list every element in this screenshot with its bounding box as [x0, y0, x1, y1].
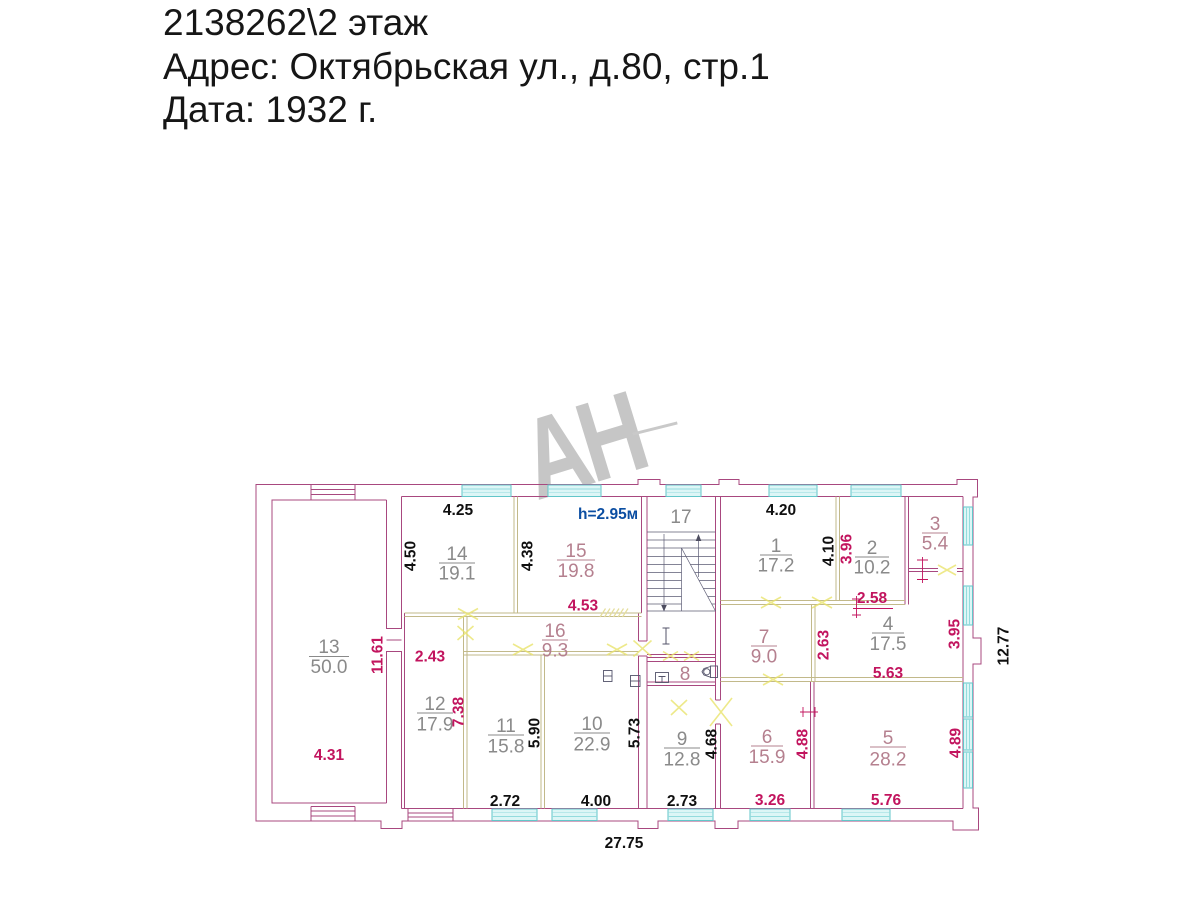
- svg-text:11: 11: [496, 716, 516, 737]
- svg-text:2.43: 2.43: [415, 649, 446, 666]
- svg-text:50.0: 50.0: [311, 657, 348, 678]
- svg-text:9.0: 9.0: [751, 647, 777, 668]
- svg-text:9.3: 9.3: [542, 641, 568, 662]
- svg-text:7: 7: [759, 627, 770, 648]
- svg-text:17.9: 17.9: [417, 715, 454, 736]
- svg-text:15: 15: [565, 541, 586, 562]
- svg-text:11.61: 11.61: [370, 636, 387, 674]
- svg-text:5.73: 5.73: [627, 718, 644, 749]
- svg-text:2.58: 2.58: [857, 590, 888, 607]
- svg-text:16: 16: [544, 621, 565, 642]
- svg-text:2.73: 2.73: [667, 793, 698, 810]
- svg-text:22.9: 22.9: [574, 735, 611, 756]
- svg-text:27.75: 27.75: [605, 835, 644, 852]
- svg-text:15.8: 15.8: [488, 737, 525, 758]
- svg-text:10: 10: [581, 714, 602, 735]
- svg-text:h=2.95м: h=2.95м: [578, 506, 638, 523]
- svg-text:3: 3: [930, 514, 941, 535]
- svg-text:4.38: 4.38: [520, 541, 537, 572]
- svg-text:3.96: 3.96: [839, 534, 856, 565]
- svg-text:4.31: 4.31: [314, 747, 345, 764]
- svg-text:4.10: 4.10: [821, 536, 838, 566]
- svg-text:12.8: 12.8: [664, 750, 701, 771]
- svg-text:4.20: 4.20: [766, 502, 796, 519]
- svg-text:5: 5: [883, 728, 894, 749]
- svg-text:5.90: 5.90: [527, 718, 544, 748]
- svg-text:4.89: 4.89: [948, 728, 965, 759]
- svg-text:15.9: 15.9: [749, 747, 786, 768]
- svg-text:17.2: 17.2: [758, 556, 795, 577]
- svg-text:4.00: 4.00: [581, 793, 611, 810]
- svg-text:19.1: 19.1: [439, 564, 476, 585]
- svg-text:4.25: 4.25: [443, 502, 474, 519]
- svg-text:4.88: 4.88: [795, 729, 812, 760]
- svg-text:19.8: 19.8: [558, 561, 595, 582]
- svg-text:4.53: 4.53: [568, 598, 599, 615]
- svg-text:2.72: 2.72: [490, 793, 520, 810]
- svg-text:12: 12: [424, 694, 445, 715]
- svg-text:14: 14: [446, 544, 468, 565]
- svg-text:12.77: 12.77: [996, 627, 1013, 666]
- svg-text:4: 4: [883, 614, 894, 635]
- svg-text:9: 9: [677, 729, 688, 750]
- svg-text:4.50: 4.50: [403, 541, 420, 571]
- svg-text:4.68: 4.68: [704, 729, 721, 760]
- svg-text:17: 17: [670, 507, 691, 528]
- svg-text:5.63: 5.63: [873, 665, 904, 682]
- svg-text:2: 2: [867, 538, 878, 559]
- svg-text:1: 1: [771, 536, 782, 557]
- svg-text:5.76: 5.76: [871, 792, 902, 809]
- svg-text:28.2: 28.2: [870, 750, 907, 771]
- svg-text:7.38: 7.38: [451, 697, 468, 728]
- svg-text:3.26: 3.26: [755, 792, 786, 809]
- svg-text:3.95: 3.95: [947, 619, 964, 650]
- svg-text:6: 6: [762, 727, 773, 748]
- svg-text:8: 8: [680, 664, 691, 685]
- svg-text:17.5: 17.5: [870, 634, 907, 655]
- svg-text:2.63: 2.63: [816, 630, 833, 661]
- svg-text:5.4: 5.4: [922, 534, 949, 555]
- svg-text:13: 13: [318, 637, 339, 658]
- svg-text:10.2: 10.2: [854, 558, 891, 579]
